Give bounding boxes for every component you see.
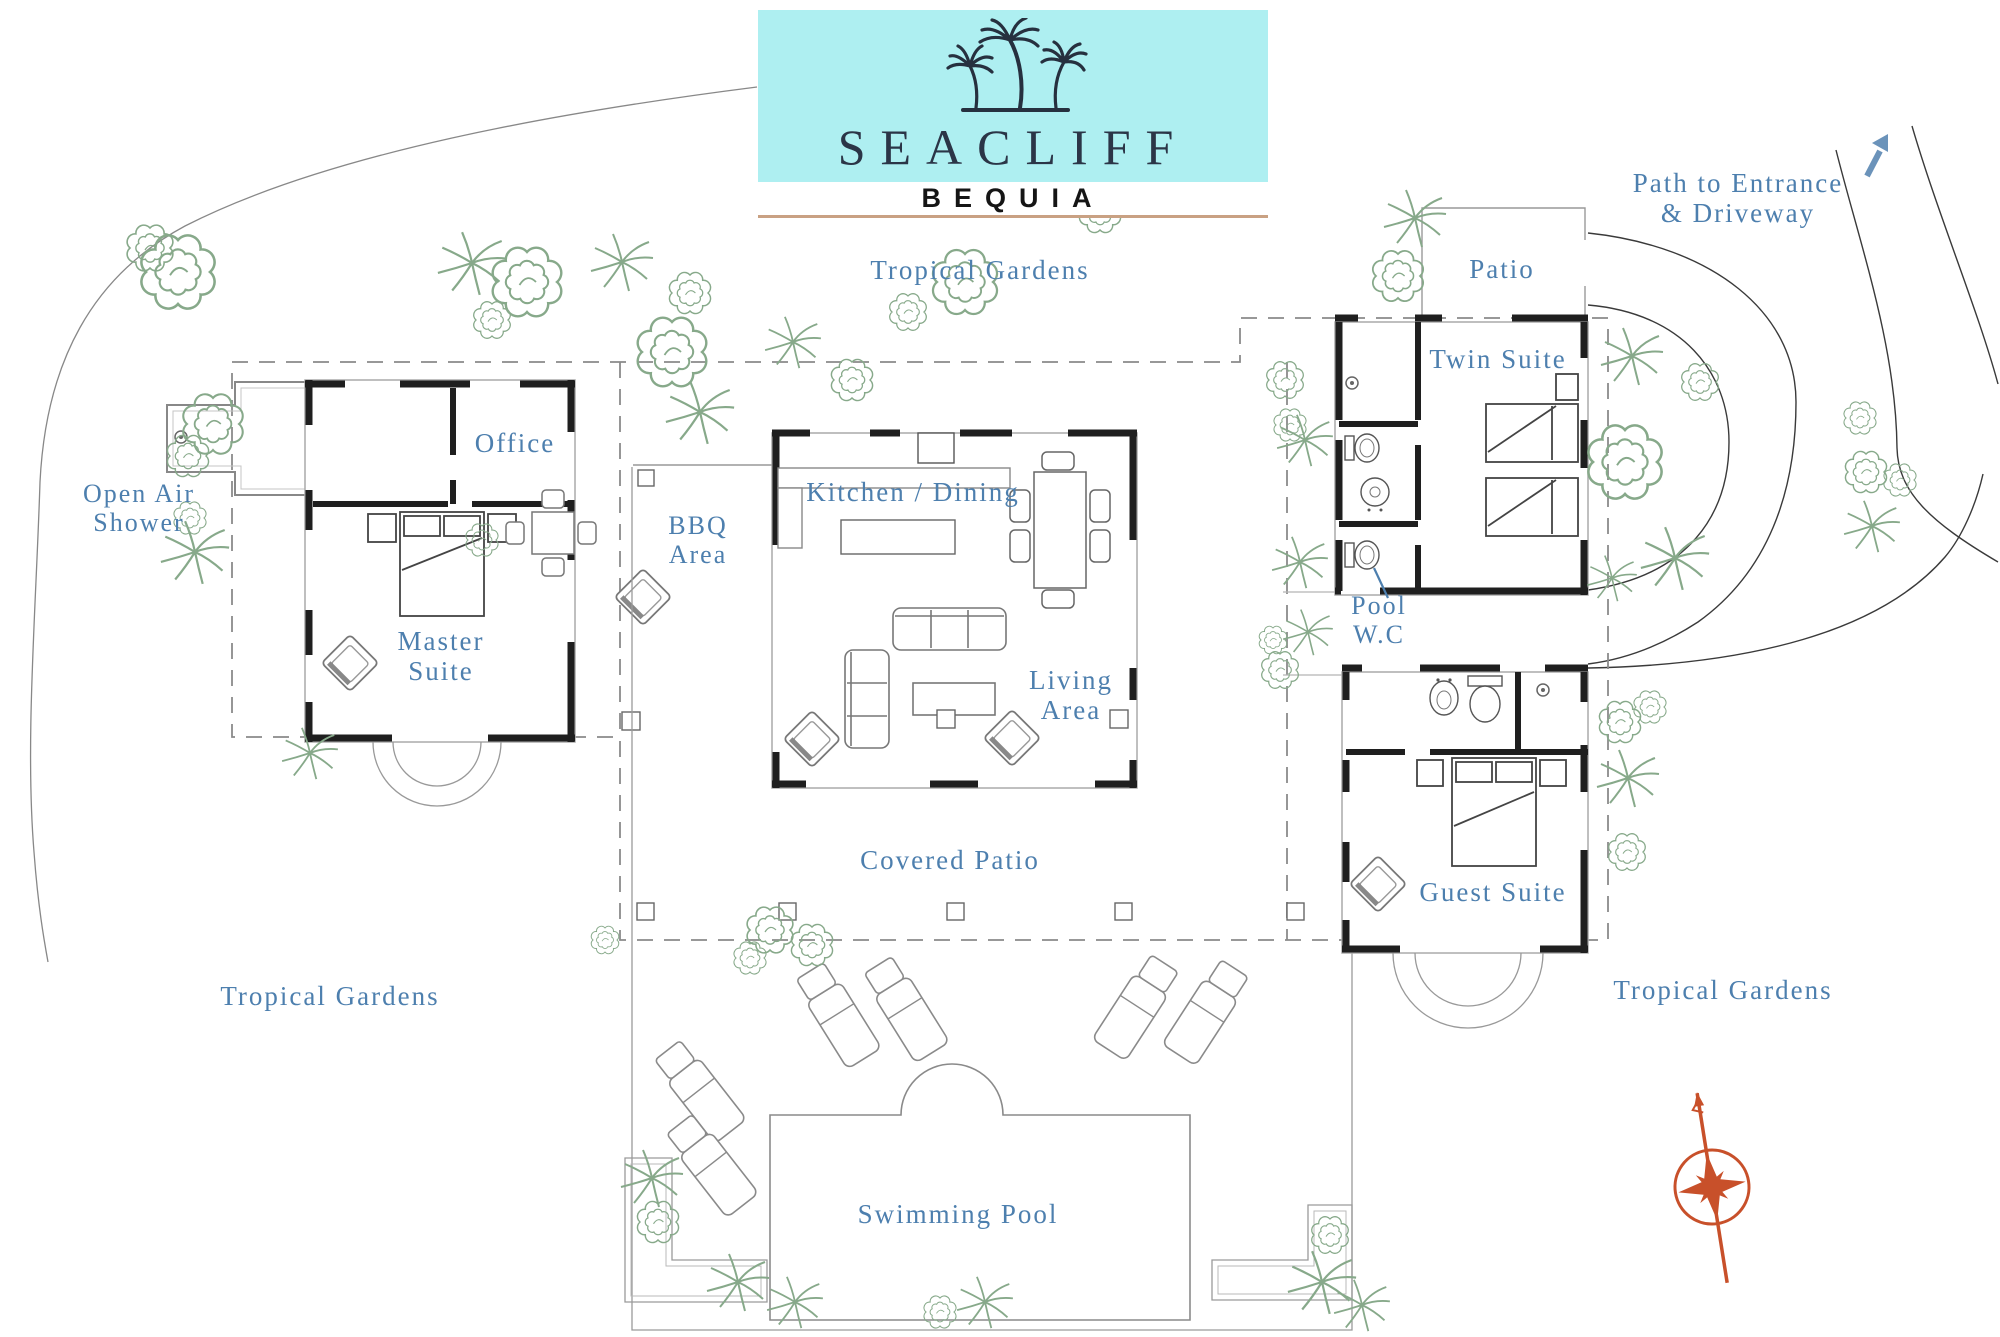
label-patio: Patio: [1469, 254, 1535, 284]
label-pool-wc: PoolW.C: [1351, 591, 1407, 649]
label-tropical-gardens-left: Tropical Gardens: [220, 981, 439, 1011]
label-guest-suite: Guest Suite: [1419, 877, 1566, 907]
site-plan: SEACLIFF BEQUIA Tropical Gardens Path to…: [0, 0, 2000, 1337]
swimming-pool-outline: [770, 1064, 1190, 1320]
label-bbq-area: BBQArea: [668, 511, 727, 569]
compass-rose-icon: [1660, 1086, 1763, 1288]
palm-trees-icon: [908, 18, 1118, 118]
logo-subtitle: BEQUIA: [758, 182, 1268, 215]
entrance-arrow-icon: [1867, 134, 1888, 176]
label-open-air-shower: Open AirShower: [83, 479, 195, 537]
label-path-to-entrance: Path to Entrance& Driveway: [1633, 168, 1843, 228]
label-covered-patio: Covered Patio: [860, 845, 1040, 875]
label-twin-suite: Twin Suite: [1429, 344, 1566, 374]
logo-underline: [758, 215, 1268, 218]
label-living-area: LivingArea: [1029, 665, 1113, 725]
sun-loungers: [652, 953, 1252, 1218]
seacliff-logo: SEACLIFF BEQUIA: [758, 10, 1268, 218]
logo-teal-panel: SEACLIFF: [758, 10, 1268, 182]
guest-suite-building: [1342, 668, 1588, 1028]
label-swimming-pool: Swimming Pool: [858, 1199, 1059, 1229]
label-master-suite: MasterSuite: [398, 626, 485, 686]
label-office: Office: [475, 428, 555, 458]
label-tropical-gardens-top: Tropical Gardens: [870, 255, 1089, 285]
logo-title: SEACLIFF: [758, 118, 1268, 176]
label-kitchen-dining: Kitchen / Dining: [806, 477, 1019, 507]
label-tropical-gardens-right: Tropical Gardens: [1613, 975, 1832, 1005]
